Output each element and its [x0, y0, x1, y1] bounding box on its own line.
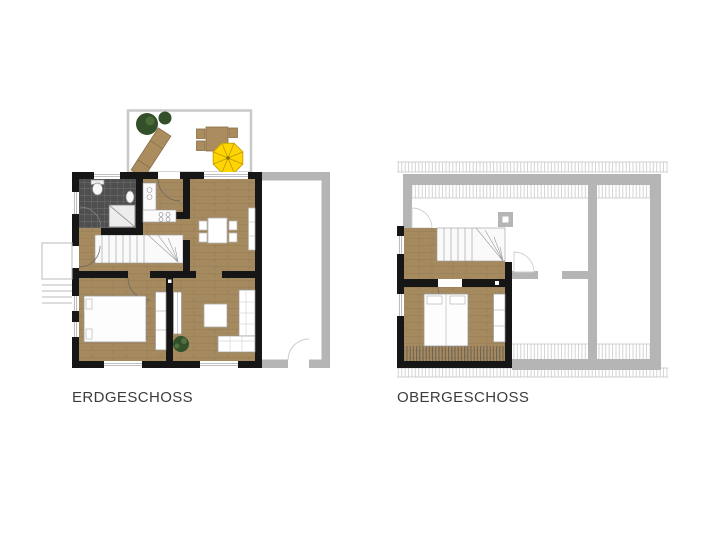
wall [505, 262, 512, 368]
toilet [93, 183, 103, 195]
wall [404, 279, 438, 287]
wall-niche [168, 280, 172, 284]
bush-highlight [146, 117, 155, 126]
wall [588, 185, 597, 359]
garden-chair [197, 141, 206, 151]
annex-wall [262, 172, 330, 181]
pillow [86, 329, 92, 339]
annex-wall [309, 360, 322, 369]
wall [397, 361, 512, 368]
pillow [450, 296, 465, 304]
attic-door-arc [514, 252, 534, 272]
pillow [86, 299, 92, 309]
garden-chair [197, 129, 206, 139]
entrance-steps [42, 243, 72, 303]
window [204, 172, 248, 179]
pillow [427, 296, 442, 304]
wall [101, 228, 143, 235]
wall [166, 278, 173, 361]
annex-wall [322, 172, 331, 368]
roof-slope-hatching [404, 346, 505, 361]
wall [222, 271, 255, 278]
staircase [95, 235, 183, 263]
floor-plan-obergeschoss [397, 162, 668, 377]
attic-door-arc [412, 208, 432, 228]
floor-plan-erdgeschoss [42, 111, 330, 369]
window [200, 361, 238, 368]
annex-wall [262, 360, 288, 369]
annex [262, 172, 330, 368]
window [72, 192, 79, 214]
dining-chair [199, 233, 207, 242]
upper-staircase [437, 228, 505, 261]
dining-chair [229, 233, 237, 242]
annex-door-arc [288, 339, 309, 360]
dining-table [208, 218, 227, 243]
window [72, 322, 79, 337]
sideboard [249, 208, 256, 250]
wall-niche [495, 281, 499, 285]
chimney-flue [503, 217, 509, 223]
ground-floor-label: ERDGESCHOSS [72, 389, 193, 406]
wall [136, 179, 143, 235]
window [397, 294, 404, 316]
window [104, 361, 142, 368]
sink [126, 191, 134, 203]
wall [403, 174, 412, 228]
double-bed [84, 296, 146, 342]
parasol [213, 143, 243, 173]
wall [562, 271, 588, 279]
wall [79, 271, 128, 278]
upper-floor-label: OBERGESCHOSS [397, 389, 529, 406]
window [397, 236, 404, 254]
plant [173, 336, 189, 352]
floor-plan-document: ERDGESCHOSS OBERGESCHOSS [0, 0, 710, 533]
window [72, 296, 79, 311]
wall [650, 174, 661, 370]
wardrobe [156, 292, 167, 350]
wall [512, 359, 661, 370]
floor-plan-drawing [0, 0, 710, 533]
wall [255, 172, 262, 368]
entrance-door [72, 246, 79, 268]
dining-chair [199, 221, 207, 230]
dining-chair [229, 221, 237, 230]
terrace-door [158, 172, 180, 179]
wall [150, 271, 196, 278]
window [94, 172, 120, 179]
wardrobe [494, 294, 506, 342]
wall [403, 174, 661, 185]
garden-chair [229, 128, 238, 138]
bush [159, 112, 172, 125]
coffee-table [204, 304, 227, 327]
